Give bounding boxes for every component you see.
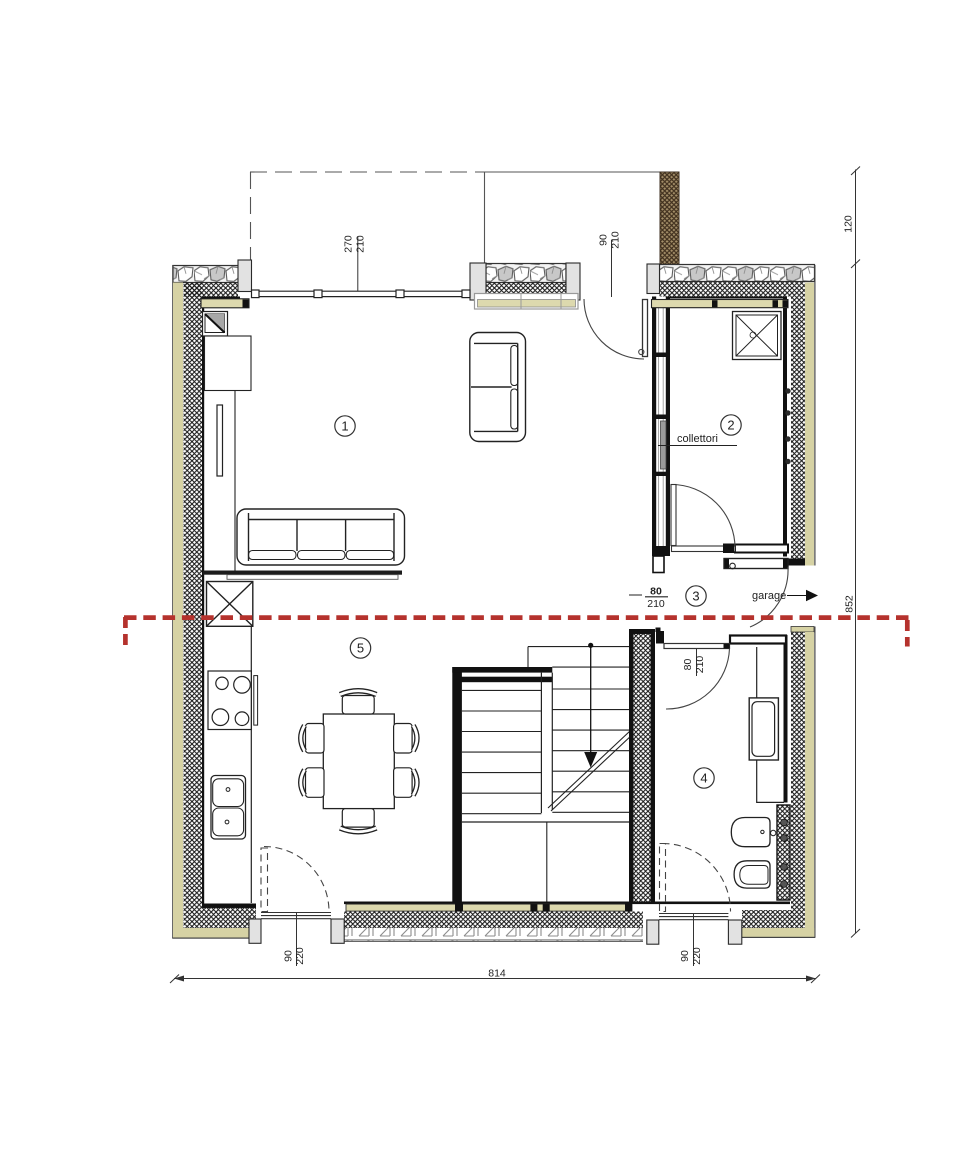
svg-text:210: 210 <box>610 231 622 249</box>
svg-text:3: 3 <box>692 589 699 604</box>
svg-text:270: 270 <box>343 235 355 253</box>
svg-text:4: 4 <box>700 771 707 786</box>
svg-text:90: 90 <box>679 950 691 962</box>
svg-text:210: 210 <box>694 656 706 674</box>
svg-text:1: 1 <box>341 419 348 434</box>
svg-text:220: 220 <box>691 947 703 965</box>
svg-text:90: 90 <box>598 234 610 246</box>
svg-text:2: 2 <box>727 418 734 433</box>
svg-text:120: 120 <box>843 215 855 233</box>
svg-text:220: 220 <box>294 947 306 965</box>
svg-text:80: 80 <box>682 659 694 671</box>
svg-text:90: 90 <box>283 950 295 962</box>
svg-text:814: 814 <box>488 968 506 980</box>
svg-text:210: 210 <box>355 235 367 253</box>
svg-text:garage: garage <box>752 590 786 602</box>
svg-text:collettori: collettori <box>677 433 718 445</box>
svg-text:5: 5 <box>357 641 364 656</box>
svg-text:80: 80 <box>650 586 662 598</box>
svg-text:852: 852 <box>844 595 856 613</box>
svg-text:210: 210 <box>647 598 665 610</box>
